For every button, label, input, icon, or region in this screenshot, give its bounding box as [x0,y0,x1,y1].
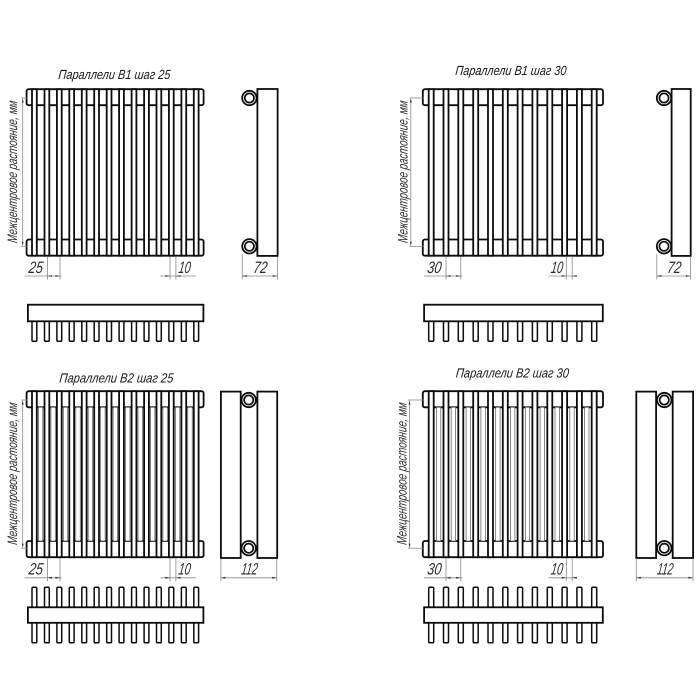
svg-text:Межцентровое растояние, мм: Межцентровое растояние, мм [4,401,20,546]
svg-text:Межцентровое растояние, мм: Межцентровое растояние, мм [393,401,409,546]
svg-text:72: 72 [666,258,682,277]
svg-text:Параллели В1 шаг 25: Параллели В1 шаг 25 [58,67,172,82]
svg-text:Параллели В2 шаг 25: Параллели В2 шаг 25 [59,371,175,386]
svg-text:Межцентровое растояние, мм: Межцентровое растояние, мм [4,99,20,244]
svg-text:Параллели В2 шаг 30: Параллели В2 шаг 30 [455,366,570,381]
svg-text:Межцентровое растояние, мм: Межцентровое растояние, мм [395,99,411,244]
svg-text:112: 112 [240,560,259,579]
svg-text:72: 72 [252,258,268,277]
svg-text:Параллели В1 шаг 30: Параллели В1 шаг 30 [455,63,568,78]
svg-text:112: 112 [656,560,675,579]
